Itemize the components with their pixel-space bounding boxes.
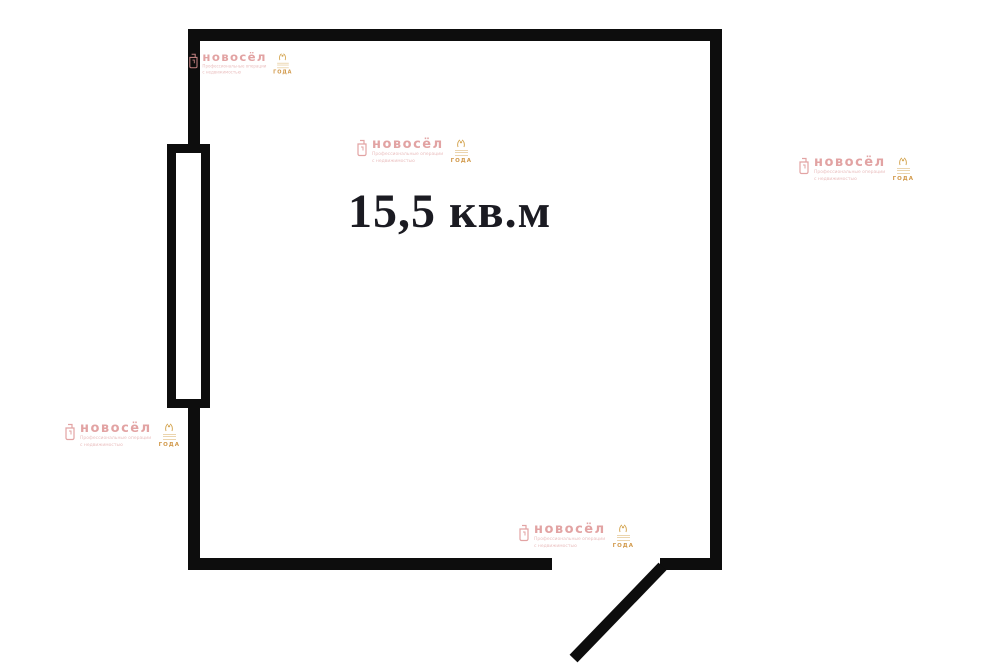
badge-year-label: ГОДА	[893, 176, 914, 182]
novosel-watermark: новосёл Профессиональные операции с недв…	[188, 52, 292, 77]
floor-plan-canvas: 15,5 кв.м новосёл Профессиональные опера…	[0, 0, 1000, 667]
watermark-text: новосёл Профессиональные операции с недв…	[80, 422, 152, 450]
badge-fine-print	[617, 537, 630, 538]
brand-subtitle-line2: с недвижимостью	[372, 159, 444, 166]
novosel-watermark: новосёл Профессиональные операции с недв…	[356, 138, 472, 166]
brand-name: новосёл	[372, 138, 444, 152]
wall-left-upper	[188, 29, 200, 151]
award-badge: ГОДА	[451, 139, 472, 164]
wall-left-lower	[188, 402, 200, 570]
wall-bottom-right	[660, 558, 722, 570]
brand-name: новосёл	[814, 156, 886, 170]
badge-fine-print	[455, 152, 468, 153]
badge-fine-print	[617, 535, 630, 536]
badge-fine-print	[277, 65, 289, 66]
wall-bottom-left	[188, 558, 552, 570]
brand-name: новосёл	[80, 422, 152, 436]
badge-year-label: ГОДА	[273, 70, 292, 75]
badge-year-label: ГОДА	[451, 158, 472, 164]
wall-top	[188, 29, 722, 41]
watermark-text: новосёл Профессиональные операции с недв…	[814, 156, 886, 184]
badge-fine-print	[277, 62, 289, 63]
room-area-label: 15,5 кв.м	[348, 184, 551, 239]
badge-fine-print	[455, 150, 468, 151]
laurel-icon	[618, 524, 628, 533]
house-icon	[798, 157, 810, 175]
badge-fine-print	[897, 173, 910, 174]
watermark-text: новосёл Профессиональные операции с недв…	[372, 138, 444, 166]
award-badge: ГОДА	[893, 157, 914, 182]
brand-subtitle-line2: с недвижимостью	[534, 544, 606, 551]
door-swing-line	[570, 563, 667, 663]
novosel-watermark: новосёл Профессиональные операции с недв…	[518, 523, 634, 551]
brand-subtitle-line1: Профессиональные операции	[814, 170, 886, 177]
badge-year-label: ГОДА	[613, 543, 634, 549]
watermark-text: новосёл Профессиональные операции с недв…	[534, 523, 606, 551]
award-badge: ГОДА	[613, 524, 634, 549]
award-badge: ГОДА	[159, 423, 180, 448]
award-badge: ГОДА	[273, 53, 292, 76]
brand-name: новосёл	[534, 523, 606, 537]
badge-fine-print	[163, 439, 176, 440]
brand-subtitle-line2: с недвижимостью	[202, 71, 266, 77]
laurel-icon	[164, 423, 174, 432]
badge-fine-print	[897, 170, 910, 171]
laurel-icon	[278, 53, 287, 61]
watermark-text: новосёл Профессиональные операции с недв…	[202, 52, 266, 77]
house-icon	[64, 423, 76, 441]
house-icon	[188, 53, 199, 69]
house-icon	[518, 524, 530, 542]
wall-right	[710, 29, 722, 570]
novosel-watermark: новосёл Профессиональные операции с недв…	[798, 156, 914, 184]
laurel-icon	[898, 157, 908, 166]
badge-fine-print	[163, 434, 176, 435]
badge-fine-print	[455, 155, 468, 156]
badge-fine-print	[163, 436, 176, 437]
badge-fine-print	[617, 540, 630, 541]
badge-fine-print	[277, 67, 289, 68]
badge-fine-print	[897, 168, 910, 169]
brand-subtitle-line2: с недвижимостью	[814, 177, 886, 184]
brand-subtitle-line2: с недвижимостью	[80, 443, 152, 450]
brand-subtitle-line1: Профессиональные операции	[372, 152, 444, 159]
badge-year-label: ГОДА	[159, 442, 180, 448]
brand-subtitle-line1: Профессиональные операции	[534, 537, 606, 544]
brand-name: новосёл	[202, 52, 266, 65]
window-symbol	[167, 144, 210, 408]
laurel-icon	[456, 139, 466, 148]
novosel-watermark: новосёл Профессиональные операции с недв…	[64, 422, 180, 450]
brand-subtitle-line1: Профессиональные операции	[80, 436, 152, 443]
house-icon	[356, 139, 368, 157]
